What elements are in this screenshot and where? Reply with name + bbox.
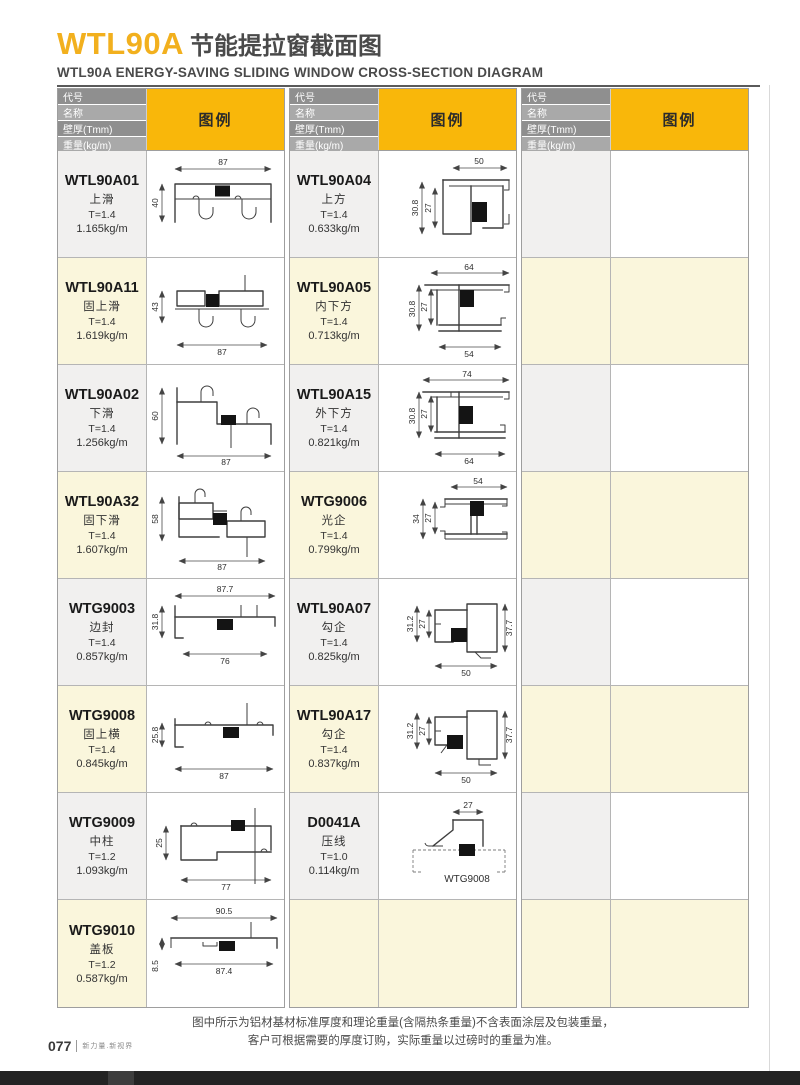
product-thickness: T=1.4	[320, 209, 347, 221]
table-row: WTL90A01 上滑 T=1.4 1.165kg/m 87 40	[58, 151, 284, 258]
group2-header: 代号 名称 壁厚(Tmm) 重量(kg/m) 图例	[290, 89, 516, 151]
diagram-d0041a: 27 WTG9008	[379, 796, 516, 896]
header-weight: 重量(kg/m)	[522, 137, 610, 152]
product-code: WTL90A05	[297, 280, 371, 296]
product-thickness: T=1.2	[88, 959, 115, 971]
product-weight: 0.857kg/m	[76, 651, 127, 663]
svg-text:87: 87	[219, 771, 229, 781]
footnote-line1: 图中所示为铝材基材标准厚度和理论重量(含隔热条重量)不含表面涂层及包装重量，	[57, 1014, 749, 1032]
product-name: 内下方	[315, 298, 353, 314]
product-thickness: T=1.4	[88, 423, 115, 435]
table-row: WTL90A32 固下滑 T=1.4 1.607kg/m 58 87	[58, 472, 284, 579]
product-code: WTL90A17	[297, 708, 371, 724]
svg-text:37.7: 37.7	[504, 726, 514, 743]
product-weight: 1.607kg/m	[76, 544, 127, 556]
product-weight: 0.821kg/m	[308, 437, 359, 449]
product-weight: 0.825kg/m	[308, 651, 359, 663]
table-row: WTL90A05 内下方 T=1.4 0.713kg/m 64 30.8 27 …	[290, 258, 516, 365]
svg-text:90.5: 90.5	[216, 906, 233, 916]
header-name: 名称	[290, 105, 378, 121]
diagram-wtl90a17: 31.2 27 37.7 50	[379, 689, 516, 789]
svg-text:30.8: 30.8	[410, 199, 420, 216]
page-subtitle: WTL90A ENERGY-SAVING SLIDING WINDOW CROS…	[57, 65, 760, 80]
page-number: 077	[48, 1038, 71, 1054]
title-divider	[57, 85, 760, 87]
table-row-empty	[522, 900, 748, 1007]
product-code: WTL90A02	[65, 387, 139, 403]
diagram-wtg9009: 25 77	[147, 796, 284, 896]
diagram-wtl90a07: 31.2 27 37.7 50	[379, 582, 516, 682]
diagram-wtg9006: 54 34 27	[379, 475, 516, 575]
product-code: WTG9009	[69, 815, 135, 831]
product-weight: 1.256kg/m	[76, 437, 127, 449]
product-thickness: T=1.4	[320, 530, 347, 542]
table-group-3: 代号 名称 壁厚(Tmm) 重量(kg/m) 图例	[521, 88, 749, 1008]
table-row: WTG9010 盖板 T=1.2 0.587kg/m 90.5 87.4 8.5	[58, 900, 284, 1007]
product-thickness: T=1.4	[88, 209, 115, 221]
diagram-wtg9008: 25.8 87	[147, 689, 284, 789]
svg-text:43: 43	[150, 302, 160, 312]
product-code: WTG9010	[69, 923, 135, 939]
product-name: 外下方	[315, 405, 353, 421]
product-code: WTL90A15	[297, 387, 371, 403]
diagram-wtl90a11: 43 87	[147, 261, 284, 361]
svg-text:87: 87	[218, 157, 228, 167]
header-thickness: 壁厚(Tmm)	[522, 121, 610, 137]
product-name: 上滑	[90, 191, 115, 207]
product-code: WTL90A04	[297, 173, 371, 189]
table-row-empty	[522, 793, 748, 900]
product-thickness: T=1.4	[88, 637, 115, 649]
svg-text:87.4: 87.4	[216, 966, 233, 976]
table-row: WTL90A02 下滑 T=1.4 1.256kg/m 60 87	[58, 365, 284, 472]
product-name: 光企	[322, 512, 347, 528]
svg-text:31.2: 31.2	[405, 722, 415, 739]
group3-header: 代号 名称 壁厚(Tmm) 重量(kg/m) 图例	[522, 89, 748, 151]
product-name: 上方	[322, 191, 347, 207]
table-row-empty	[522, 472, 748, 579]
svg-text:87: 87	[217, 562, 227, 572]
product-code: WTG9008	[69, 708, 135, 724]
header-legend: 图例	[147, 89, 284, 150]
svg-text:77: 77	[221, 882, 231, 892]
svg-text:25.8: 25.8	[150, 726, 160, 743]
product-name: 压线	[322, 833, 347, 849]
table-row-empty	[522, 365, 748, 472]
diagram-wtl90a02: 60 87	[147, 368, 284, 468]
page-title-cn: 节能提拉窗截面图	[190, 33, 382, 60]
product-code: WTL90A32	[65, 494, 139, 510]
svg-text:74: 74	[462, 369, 472, 379]
svg-text:30.8: 30.8	[407, 407, 417, 424]
reference-profile-label: WTG9008	[444, 874, 490, 885]
product-thickness: T=1.4	[88, 744, 115, 756]
product-weight: 1.093kg/m	[76, 865, 127, 877]
table-row: WTG9006 光企 T=1.4 0.799kg/m 54 34 27	[290, 472, 516, 579]
table-row: WTL90A17 勾企 T=1.4 0.837kg/m 31.2 27 37.7…	[290, 686, 516, 793]
product-code: WTG9006	[301, 494, 367, 510]
header-weight: 重量(kg/m)	[290, 137, 378, 152]
table-row: WTG9009 中柱 T=1.2 1.093kg/m 25 77	[58, 793, 284, 900]
table-row-empty	[522, 686, 748, 793]
header-code: 代号	[522, 89, 610, 105]
table-row: WTL90A04 上方 T=1.4 0.633kg/m 50 30.8 27	[290, 151, 516, 258]
svg-text:54: 54	[473, 476, 483, 486]
footnote: 图中所示为铝材基材标准厚度和理论重量(含隔热条重量)不含表面涂层及包装重量， 客…	[57, 1014, 749, 1050]
svg-text:25: 25	[154, 838, 164, 848]
svg-text:60: 60	[150, 411, 160, 421]
svg-text:64: 64	[464, 262, 474, 272]
svg-text:37.7: 37.7	[504, 619, 514, 636]
table-row-empty	[522, 258, 748, 365]
product-name: 勾企	[322, 726, 347, 742]
header-name: 名称	[58, 105, 146, 121]
product-weight: 0.633kg/m	[308, 223, 359, 235]
product-weight: 0.837kg/m	[308, 758, 359, 770]
diagram-wtg9010: 90.5 87.4 8.5	[147, 904, 284, 1004]
group1-header: 代号 名称 壁厚(Tmm) 重量(kg/m) 图例	[58, 89, 284, 151]
product-weight: 0.799kg/m	[308, 544, 359, 556]
product-code: D0041A	[307, 815, 360, 831]
product-thickness: T=1.4	[320, 316, 347, 328]
product-code: WTL90A11	[65, 280, 138, 296]
header-legend: 图例	[379, 89, 516, 150]
title-block: WTL90A节能提拉窗截面图 WTL90A ENERGY-SAVING SLID…	[57, 26, 760, 87]
product-name: 盖板	[90, 941, 115, 957]
svg-text:50: 50	[461, 775, 471, 785]
product-weight: 0.713kg/m	[308, 330, 359, 342]
page-footer: 077 新力量.新视界	[48, 1038, 133, 1054]
table-group-1: 代号 名称 壁厚(Tmm) 重量(kg/m) 图例 WTL90A01 上滑 T=…	[57, 88, 285, 1008]
header-name: 名称	[522, 105, 610, 121]
product-thickness: T=1.0	[320, 851, 347, 863]
svg-text:87: 87	[221, 457, 231, 467]
page-title-code: WTL90A	[57, 26, 184, 61]
svg-text:8.5: 8.5	[150, 959, 160, 971]
svg-text:27: 27	[419, 409, 429, 419]
page-edge-shadow	[769, 85, 770, 1085]
svg-text:30.8: 30.8	[407, 300, 417, 317]
bottom-bar-segment	[108, 1071, 134, 1085]
table-row: WTG9003 边封 T=1.4 0.857kg/m 87.7 31.8 76	[58, 579, 284, 686]
svg-text:31.2: 31.2	[405, 615, 415, 632]
diagram-wtl90a32: 58 87	[147, 475, 284, 575]
svg-text:27: 27	[463, 800, 473, 810]
product-thickness: T=1.4	[320, 637, 347, 649]
table-group-2: 代号 名称 壁厚(Tmm) 重量(kg/m) 图例 WTL90A04 上方 T=…	[289, 88, 517, 1008]
header-thickness: 壁厚(Tmm)	[290, 121, 378, 137]
svg-text:58: 58	[150, 514, 160, 524]
svg-text:27: 27	[417, 726, 427, 736]
table-row: WTL90A15 外下方 T=1.4 0.821kg/m 74 30.8 27 …	[290, 365, 516, 472]
product-thickness: T=1.4	[320, 744, 347, 756]
svg-text:76: 76	[220, 656, 230, 666]
product-thickness: T=1.2	[88, 851, 115, 863]
table-row: D0041A 压线 T=1.0 0.114kg/m 27 WTG9008	[290, 793, 516, 900]
product-name: 边封	[90, 619, 115, 635]
table-row-empty	[522, 579, 748, 686]
product-name: 下滑	[90, 405, 115, 421]
product-code: WTG9003	[69, 601, 135, 617]
svg-text:34: 34	[411, 514, 421, 524]
product-weight: 0.587kg/m	[76, 973, 127, 985]
footer-tagline: 新力量.新视界	[82, 1041, 133, 1051]
diagram-wtl90a05: 64 30.8 27 54	[379, 261, 516, 361]
diagram-wtl90a01: 87 40	[147, 154, 284, 254]
product-weight: 0.845kg/m	[76, 758, 127, 770]
svg-text:27: 27	[423, 203, 433, 213]
product-weight: 1.165kg/m	[76, 223, 127, 235]
product-name: 固下滑	[83, 512, 121, 528]
table-row-empty	[522, 151, 748, 258]
bottom-bar	[0, 1071, 800, 1085]
header-thickness: 壁厚(Tmm)	[58, 121, 146, 137]
svg-text:27: 27	[423, 513, 433, 523]
svg-text:50: 50	[474, 156, 484, 166]
header-legend: 图例	[611, 89, 748, 150]
header-code: 代号	[290, 89, 378, 105]
svg-text:54: 54	[464, 349, 474, 359]
footer-divider	[76, 1040, 77, 1052]
svg-text:87.7: 87.7	[217, 584, 234, 594]
product-code: WTL90A01	[65, 173, 139, 189]
product-code: WTL90A07	[297, 601, 371, 617]
product-name: 勾企	[322, 619, 347, 635]
product-name: 固上滑	[83, 298, 121, 314]
table-row: WTL90A11 固上滑 T=1.4 1.619kg/m 43 87	[58, 258, 284, 365]
header-code: 代号	[58, 89, 146, 105]
product-weight: 1.619kg/m	[76, 330, 127, 342]
svg-text:31.8: 31.8	[150, 613, 160, 630]
table-row: WTG9008 固上横 T=1.4 0.845kg/m 25.8 87	[58, 686, 284, 793]
svg-text:40: 40	[150, 198, 160, 208]
diagram-wtl90a15: 74 30.8 27 64	[379, 368, 516, 468]
svg-text:64: 64	[464, 456, 474, 466]
catalog-page: WTL90A节能提拉窗截面图 WTL90A ENERGY-SAVING SLID…	[0, 0, 800, 1085]
header-weight: 重量(kg/m)	[58, 137, 146, 152]
svg-text:50: 50	[461, 668, 471, 678]
diagram-wtg9003: 87.7 31.8 76	[147, 582, 284, 682]
table-row: WTL90A07 勾企 T=1.4 0.825kg/m 31.2 27 37.7…	[290, 579, 516, 686]
svg-text:27: 27	[419, 302, 429, 312]
diagram-wtl90a04: 50 30.8 27	[379, 154, 516, 254]
product-name: 固上横	[83, 726, 121, 742]
table-row-empty	[290, 900, 516, 1007]
product-thickness: T=1.4	[320, 423, 347, 435]
svg-text:27: 27	[417, 619, 427, 629]
product-name: 中柱	[90, 833, 115, 849]
footnote-line2: 客户可根据需要的厚度订购，实际重量以过磅时的重量为准。	[57, 1032, 749, 1050]
product-thickness: T=1.4	[88, 530, 115, 542]
product-thickness: T=1.4	[88, 316, 115, 328]
product-weight: 0.114kg/m	[309, 865, 360, 877]
svg-text:87: 87	[217, 347, 227, 357]
